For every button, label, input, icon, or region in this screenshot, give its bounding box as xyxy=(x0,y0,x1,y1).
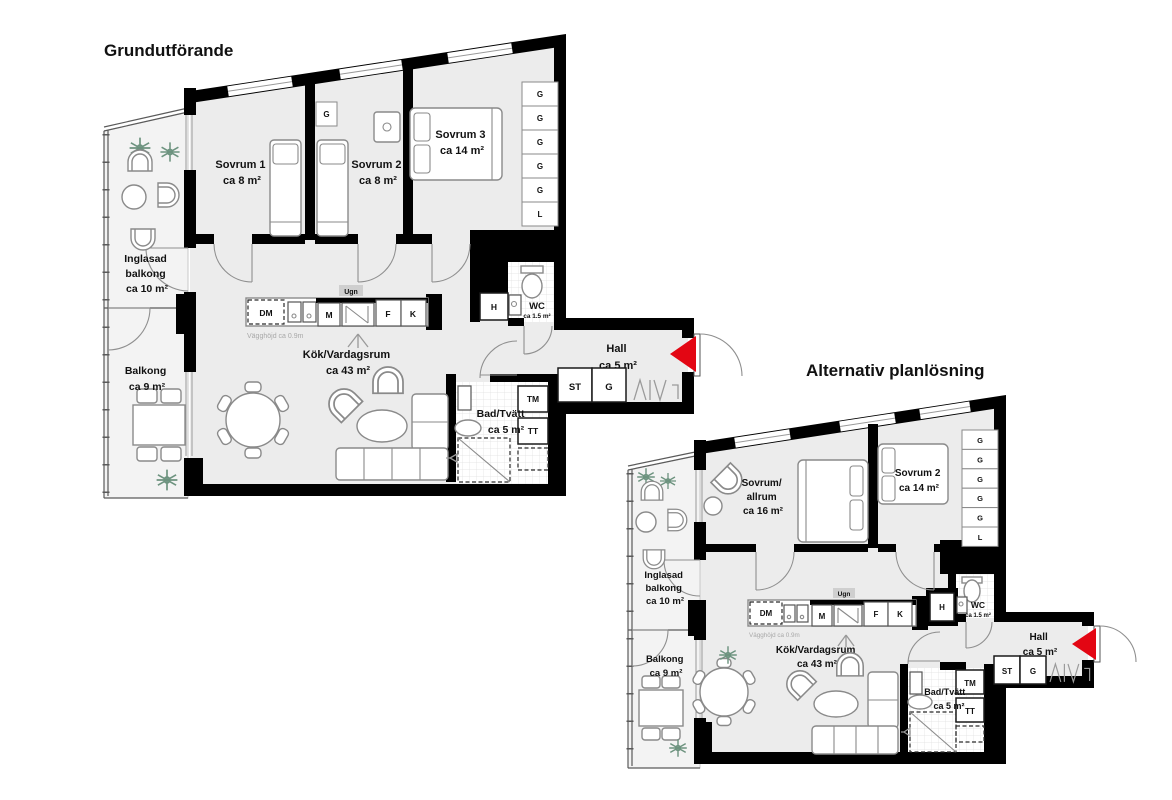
dishwasher-label: DM xyxy=(760,609,773,618)
side-table-icon xyxy=(636,512,656,532)
wc-area-label: ca 1.5 m² xyxy=(523,313,550,320)
wc-sink-icon xyxy=(957,597,967,613)
floorplan-svg: Grundutförande xyxy=(0,0,1172,800)
bed-double-icon xyxy=(798,460,868,542)
hat-shelf-label: H xyxy=(939,603,945,612)
room-label-inglasad-balkong: Inglasad balkong ca 10 m² xyxy=(124,253,170,295)
plan1-title: Grundutförande xyxy=(104,41,233,60)
closet-cell-label: G xyxy=(537,138,543,147)
wardrobe-label: G xyxy=(323,110,329,119)
wardrobe-label: G xyxy=(605,382,612,393)
microwave-label: M xyxy=(819,612,826,621)
closet-cell-label: G xyxy=(977,514,983,523)
cleaning-closet-label: ST xyxy=(1002,667,1012,676)
closet-cell-label: L xyxy=(978,533,983,542)
room-label-inglasad-balkong: Inglasad balkong ca 10 m² xyxy=(644,570,685,607)
room-label-wc: WC xyxy=(529,301,545,312)
dryer-label: TT xyxy=(965,707,975,716)
cleaning-closet-label: ST xyxy=(569,382,581,393)
hat-shelf-label: H xyxy=(491,302,497,312)
closet-cell-label: G xyxy=(977,455,983,464)
plan2-title: Alternativ planlösning xyxy=(806,361,985,380)
armchair-icon xyxy=(373,367,403,393)
coffee-table-icon xyxy=(814,691,858,717)
closet-cell-label: L xyxy=(538,210,543,219)
microwave-label: M xyxy=(325,310,332,320)
oven-label: Ugn xyxy=(838,591,851,598)
closet-cell-label: G xyxy=(537,114,543,123)
armchair-icon xyxy=(837,653,863,676)
plan1-closet-column: G G G G G L xyxy=(522,82,558,226)
plan-grundutforande: Grundutförande xyxy=(104,34,742,498)
closet-cell-label: G xyxy=(537,90,543,99)
freezer-label: K xyxy=(410,309,417,319)
fridge-label: F xyxy=(874,610,879,619)
plan2-closet-column: G G G G G L xyxy=(962,430,998,546)
closet-cell-label: G xyxy=(537,186,543,195)
closet-cell-label: G xyxy=(977,494,983,503)
entry-door-arc xyxy=(1100,626,1136,662)
nightstand-icon xyxy=(374,112,400,142)
lounge-chair-icon xyxy=(128,150,152,171)
side-table-icon xyxy=(122,185,146,209)
lounge-chair-icon xyxy=(158,183,179,207)
room-label-wc: WC xyxy=(971,600,985,610)
lounge-chair-icon xyxy=(641,481,663,500)
wall-height-note: Vägghöjd ca 0.9m xyxy=(247,333,304,340)
bed-double-icon xyxy=(410,108,502,180)
washer-label: TM xyxy=(527,394,539,404)
entry-door-arc xyxy=(700,334,742,376)
wc-area-label: ca 1.5 m² xyxy=(965,612,991,619)
dishwasher-label: DM xyxy=(259,308,272,318)
lounge-chair-icon xyxy=(131,229,155,250)
wc-sink-icon xyxy=(509,295,521,315)
side-table-icon xyxy=(704,497,722,515)
dryer-label: TT xyxy=(528,426,539,436)
freezer-label: K xyxy=(897,610,903,619)
coffee-table-icon xyxy=(357,410,407,442)
closet-cell-label: G xyxy=(537,162,543,171)
oven-label: Ugn xyxy=(344,289,358,296)
fridge-label: F xyxy=(385,309,390,319)
wall-height-note: Vägghöjd ca 0.9m xyxy=(749,632,800,639)
lounge-chair-icon xyxy=(668,509,687,531)
bed-single-icon xyxy=(270,140,301,236)
closet-cell-label: G xyxy=(977,436,983,445)
bed-single-icon xyxy=(317,140,348,236)
floorplan-canvas: Grundutförande xyxy=(0,0,1172,800)
plan-alternativ-planlosning: Alternativ planlösning xyxy=(628,361,1136,768)
toilet-icon xyxy=(521,266,543,298)
lounge-chair-icon xyxy=(643,550,665,569)
wardrobe-label: G xyxy=(1030,667,1036,676)
closet-cell-label: G xyxy=(977,475,983,484)
room-label-sovrum-allrum: Sovrum/ allrum ca 16 m² xyxy=(742,478,785,517)
